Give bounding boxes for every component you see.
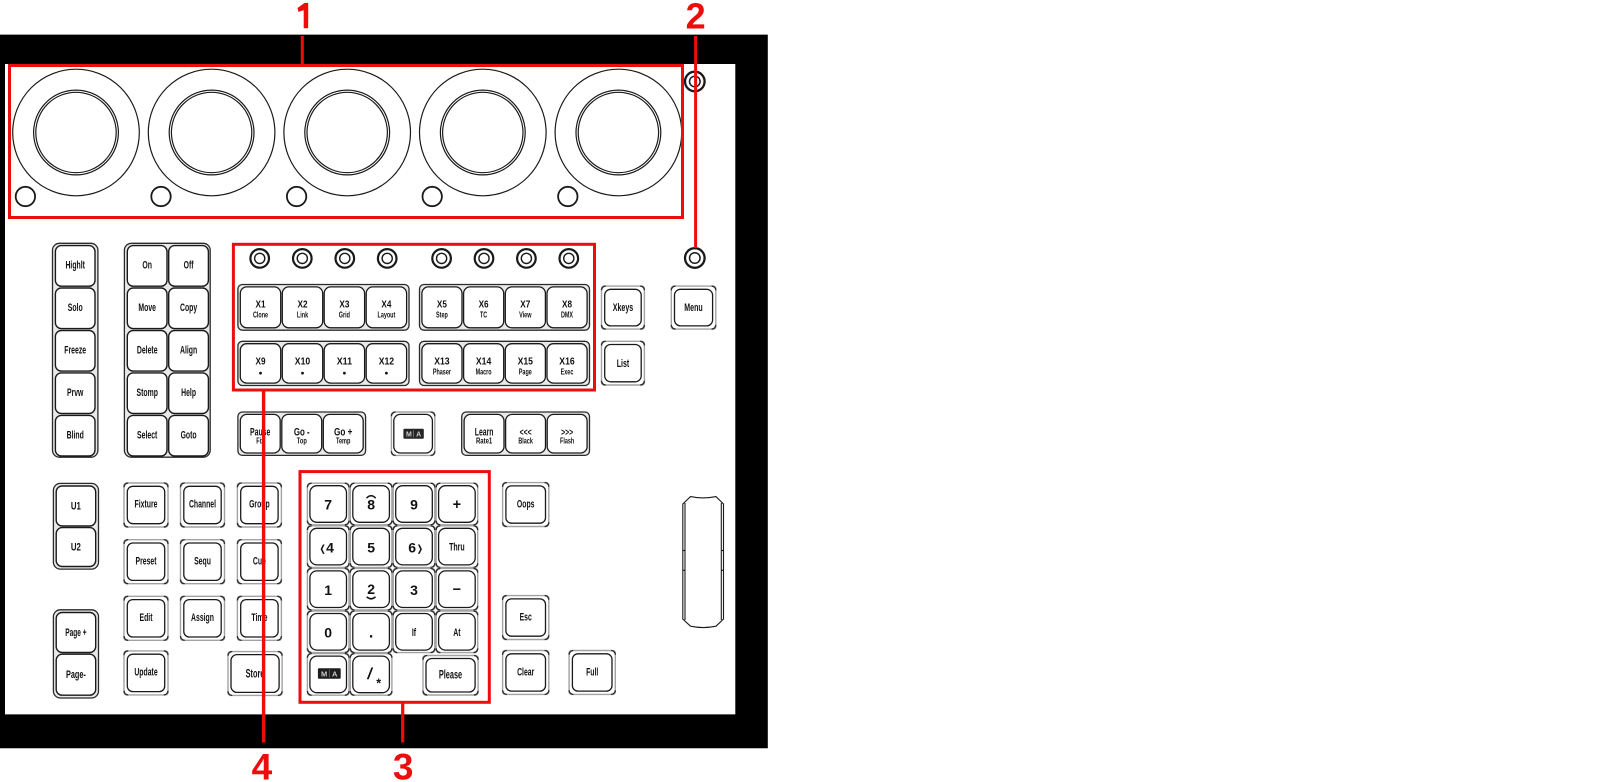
svg-text:Update: Update	[134, 667, 157, 679]
svg-text:Menu: Menu	[684, 302, 702, 314]
svg-text:3: 3	[393, 747, 414, 782]
svg-text:List: List	[617, 358, 630, 370]
svg-text:If: If	[412, 627, 417, 639]
svg-text:Freeze: Freeze	[64, 345, 86, 357]
svg-text:U1: U1	[71, 500, 81, 512]
svg-text:1: 1	[324, 582, 332, 598]
svg-text:Phaser: Phaser	[433, 366, 452, 376]
svg-text:❭: ❭	[416, 543, 424, 554]
svg-text:DMX: DMX	[561, 310, 573, 320]
svg-text:4: 4	[326, 539, 334, 555]
svg-text:Assign: Assign	[191, 612, 214, 624]
svg-text:Macro: Macro	[476, 366, 492, 376]
svg-text:Black: Black	[518, 436, 533, 446]
svg-text:6: 6	[408, 539, 416, 555]
svg-text:M: M	[321, 670, 327, 679]
svg-text:Fixture: Fixture	[135, 499, 158, 511]
svg-text:Step: Step	[436, 310, 448, 320]
svg-text:On: On	[142, 260, 152, 272]
svg-text:−: −	[453, 582, 461, 598]
svg-text:Top: Top	[297, 436, 307, 446]
svg-text:Full: Full	[586, 667, 598, 679]
svg-text:Copy: Copy	[180, 302, 197, 314]
svg-text:❬: ❬	[319, 543, 327, 554]
svg-text:Highlt: Highlt	[65, 260, 85, 272]
svg-text:Off: Off	[184, 260, 194, 272]
svg-text:4: 4	[252, 747, 273, 782]
svg-text:Page +: Page +	[65, 627, 86, 639]
svg-text:A: A	[332, 670, 338, 679]
svg-text:X10: X10	[295, 357, 311, 368]
svg-text:5: 5	[367, 539, 375, 555]
svg-text:M: M	[406, 432, 412, 439]
svg-text:Channel: Channel	[189, 499, 216, 511]
svg-text:X12: X12	[379, 357, 395, 368]
svg-text:Please: Please	[439, 670, 462, 682]
svg-text:Stomp: Stomp	[137, 387, 159, 399]
svg-text:Align: Align	[180, 345, 197, 357]
svg-text:Help: Help	[181, 387, 196, 399]
svg-text:Group: Group	[249, 499, 270, 511]
svg-text:U2: U2	[71, 541, 81, 553]
svg-text:Flash: Flash	[560, 436, 574, 446]
svg-text:Clear: Clear	[517, 667, 535, 679]
svg-text:0: 0	[324, 625, 332, 641]
svg-text:2: 2	[686, 0, 706, 36]
svg-text:Oops: Oops	[517, 499, 535, 511]
svg-text:Layout: Layout	[378, 310, 396, 320]
svg-text:2: 2	[367, 581, 375, 597]
svg-text:Rate1: Rate1	[476, 436, 493, 446]
svg-text:*: *	[376, 676, 381, 690]
svg-text:Grid: Grid	[339, 310, 350, 320]
svg-text:3: 3	[410, 582, 418, 598]
svg-text:A: A	[416, 432, 421, 439]
svg-text:At: At	[453, 627, 461, 639]
svg-text:Exec: Exec	[561, 366, 574, 376]
svg-text:7: 7	[324, 497, 332, 513]
svg-text:Blind: Blind	[67, 429, 84, 441]
svg-text:Sequ: Sequ	[194, 555, 211, 567]
svg-text:Delete: Delete	[137, 345, 158, 357]
svg-text:Page-: Page-	[66, 669, 86, 681]
svg-text:Xkeys: Xkeys	[613, 302, 633, 314]
svg-text:Link: Link	[297, 310, 308, 320]
svg-text:Prvw: Prvw	[67, 387, 84, 399]
svg-text:Move: Move	[138, 302, 156, 314]
svg-text:View: View	[519, 310, 532, 320]
svg-text:Esc: Esc	[520, 612, 532, 624]
svg-text:Edit: Edit	[140, 612, 153, 624]
svg-text:Store: Store	[246, 668, 265, 680]
svg-text:Goto: Goto	[181, 429, 197, 441]
svg-text:X9: X9	[256, 357, 266, 368]
svg-text:Solo: Solo	[68, 302, 83, 314]
svg-text:X11: X11	[337, 357, 353, 368]
svg-text:+: +	[453, 497, 461, 513]
svg-text:Clone: Clone	[253, 310, 268, 320]
svg-text:.: .	[369, 625, 373, 642]
svg-text:9: 9	[410, 497, 418, 513]
svg-text:TC: TC	[480, 310, 487, 320]
svg-text:Select: Select	[137, 429, 158, 441]
svg-text:Page: Page	[519, 366, 532, 376]
svg-text:Temp: Temp	[336, 436, 351, 446]
svg-text:Preset: Preset	[136, 555, 157, 567]
svg-text:8: 8	[367, 497, 375, 513]
svg-text:Thru: Thru	[449, 542, 465, 554]
